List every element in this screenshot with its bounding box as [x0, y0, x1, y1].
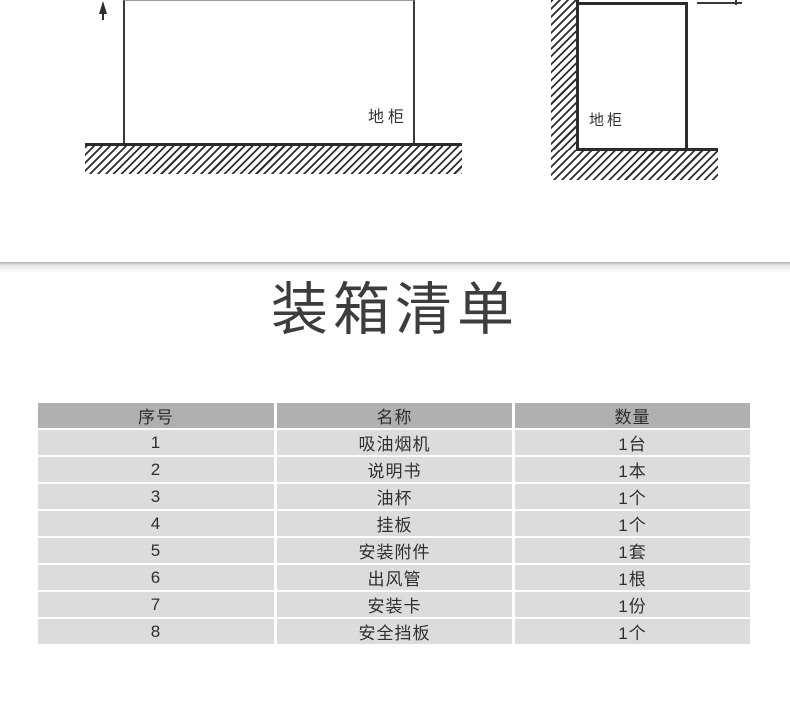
cell-no: 6 [38, 565, 274, 590]
section-divider-shadow [0, 262, 790, 274]
cell-no: 2 [38, 457, 274, 482]
cell-name: 油杯 [277, 484, 512, 509]
ground-hatch [85, 143, 462, 174]
dimension-tick [735, 0, 737, 5]
cell-name: 出风管 [277, 565, 512, 590]
cell-name: 吸油烟机 [277, 430, 512, 455]
title-section: 装箱清单 [0, 276, 790, 344]
floor-top-line [576, 148, 718, 151]
cell-no: 8 [38, 619, 274, 644]
cell-name: 说明书 [277, 457, 512, 482]
cell-name: 安装卡 [277, 592, 512, 617]
cell-name: 安装附件 [277, 538, 512, 563]
floor-cabinet-label: 地柜 [589, 109, 625, 130]
cell-qty: 1个 [515, 484, 750, 509]
floor-cabinet-label: 地柜 [368, 103, 408, 127]
floor-hatch [551, 150, 718, 180]
cell-name: 挂板 [277, 511, 512, 536]
page-title: 装箱清单 [0, 276, 790, 344]
cell-no: 7 [38, 592, 274, 617]
column-header-name: 名称 [277, 403, 512, 428]
packing-list-table: 序号 名称 数量 1吸油烟机1台2说明书1本3油杯1个4挂板1个5安装附件1套6… [38, 403, 750, 644]
cell-name: 安全挡板 [277, 619, 512, 644]
cell-no: 1 [38, 430, 274, 455]
cell-no: 4 [38, 511, 274, 536]
cell-no: 5 [38, 538, 274, 563]
manual-page: 地柜 地柜 装箱清单 序号 名称 数量 1吸油烟机1台2说明书1本3油杯1个4挂… [0, 0, 790, 714]
cell-qty: 1个 [515, 619, 750, 644]
cell-no: 3 [38, 484, 274, 509]
cell-qty: 1份 [515, 592, 750, 617]
cell-qty: 1本 [515, 457, 750, 482]
cell-qty: 1个 [515, 511, 750, 536]
cell-qty: 1套 [515, 538, 750, 563]
column-header-qty: 数量 [515, 403, 750, 428]
cell-qty: 1台 [515, 430, 750, 455]
cell-qty: 1根 [515, 565, 750, 590]
up-arrow-shaft [102, 11, 104, 20]
column-header-no: 序号 [38, 403, 274, 428]
